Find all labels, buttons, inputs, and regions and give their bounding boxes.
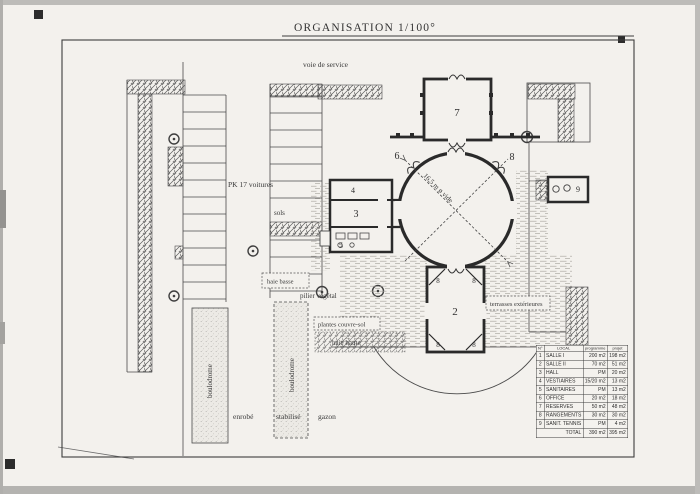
table-row: 5SANITAIRESPM13 m2 [536,386,627,395]
label-stabilise: stabilisé [276,412,301,421]
table-cell: SALLE I [544,352,583,361]
table-cell: TOTAL [536,428,583,438]
area-table-body: 1SALLE I200 m2198 m22SALLE II70 m251 m23… [536,352,627,438]
table-cell: SALLE II [544,360,583,369]
table-total-row: TOTAL390 m2395 m2 [536,428,627,438]
label-pk17-voitures: PK 17 voitures [228,180,273,189]
label-gazon: gazon [318,412,336,421]
table-row: 7RESERVES50 m248 m2 [536,403,627,412]
table-cell: HALL [544,369,583,378]
room-number-6: 6 [395,151,400,162]
table-cell: 70 m2 [583,360,607,369]
table-cell: 51 m2 [607,360,627,369]
label-boulodrome-2: boulodrome [288,358,296,392]
scan-mark-bottom-left [5,459,15,469]
table-cell: 198 m2 [607,352,627,361]
table-row: 9SANIT. TENNISPM4 m2 [536,420,627,429]
table-cell: 2 [536,360,544,369]
table-cell: SANIT. TENNIS [544,420,583,429]
closet-number: 8 [472,277,476,285]
table-cell: 200 m2 [583,352,607,361]
table-cell: 20 m2 [607,369,627,378]
label-enrobe: enrobé [233,412,254,421]
table-cell: 3 [536,369,544,378]
room-number-4: 4 [351,186,355,195]
area-table: N°LOCALprogrammeprojet 1SALLE I200 m2198… [536,345,628,438]
closet-number: 8 [436,341,440,349]
closet-number: 8 [436,277,440,285]
page-title: ORGANISATION 1/100° [294,22,436,34]
table-cell: SANITAIRES [544,386,583,395]
table-cell: 30 m2 [583,411,607,420]
label-pilier-vegetal: pilier végétal [300,292,337,300]
table-row: 3HALLPM20 m2 [536,369,627,378]
table-cell: 18 m2 [607,394,627,403]
table-cell: OFFICE [544,394,583,403]
table-row: 8RANGEMENTS30 m230 m2 [536,411,627,420]
table-cell: 9 [536,420,544,429]
label-haie-basse: haie basse [267,279,294,286]
table-cell: 6 [536,394,544,403]
table-cell: PM [583,386,607,395]
table-cell: PM [583,369,607,378]
table-cell: 4 m2 [607,420,627,429]
table-cell: PM [583,420,607,429]
scanned-plan-page: ORGANISATION 1/100° [0,0,700,494]
room-number-3: 3 [354,209,359,220]
label-haie-haute: haie haute [332,339,361,347]
room-number-2: 2 [452,306,458,318]
table-cell: 1 [536,352,544,361]
table-cell: 5 [536,386,544,395]
table-cell: 13 m2 [607,377,627,386]
table-row: 4VESTIAIRES15/20 m213 m2 [536,377,627,386]
table-row: 6OFFICE20 m218 m2 [536,394,627,403]
table-cell: 15/20 m2 [583,377,607,386]
closet-number: 8 [472,341,476,349]
table-row: 2SALLE II70 m251 m2 [536,360,627,369]
label-plantes-couvre-sol: plantes couvre-sol [318,322,366,329]
table-cell: 20 m2 [583,394,607,403]
table-cell: RESERVES [544,403,583,412]
room-sanit-tennis [536,177,588,202]
table-cell: 48 m2 [607,403,627,412]
left-wing [320,180,400,252]
room-number-9: 9 [576,185,580,194]
scan-mark-top-left [34,10,43,19]
table-cell: 395 m2 [607,428,627,438]
table-cell: 30 m2 [607,411,627,420]
label-voie-de-service: voie de service [303,60,349,69]
label-terrasses-exterieures: terrasses extérieures [490,301,543,308]
label-sols: sols [274,209,285,217]
table-cell: 8 [536,411,544,420]
label-boulodrome-1: boulodrome [206,364,214,398]
table-cell: 390 m2 [583,428,607,438]
terrace-arc [374,347,540,394]
room-number-8: 8 [510,152,515,163]
table-cell: VESTIAIRES [544,377,583,386]
table-cell: RANGEMENTS [544,411,583,420]
room-number-7: 7 [454,107,460,119]
table-cell: 4 [536,377,544,386]
table-cell: 7 [536,403,544,412]
table-row: 1SALLE I200 m2198 m2 [536,352,627,361]
table-cell: 50 m2 [583,403,607,412]
room-number-5: 5 [339,241,343,250]
table-cell: 13 m2 [607,386,627,395]
